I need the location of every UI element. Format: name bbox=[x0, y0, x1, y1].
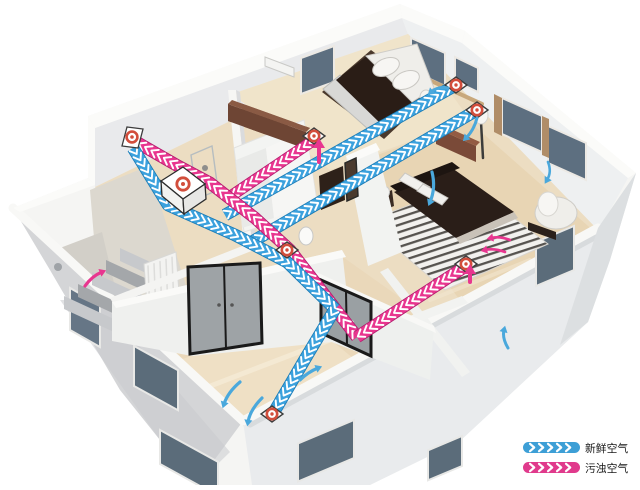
svg-text:新鲜空气: 新鲜空气 bbox=[585, 441, 628, 455]
svg-text:污浊空气: 污浊空气 bbox=[585, 461, 628, 475]
